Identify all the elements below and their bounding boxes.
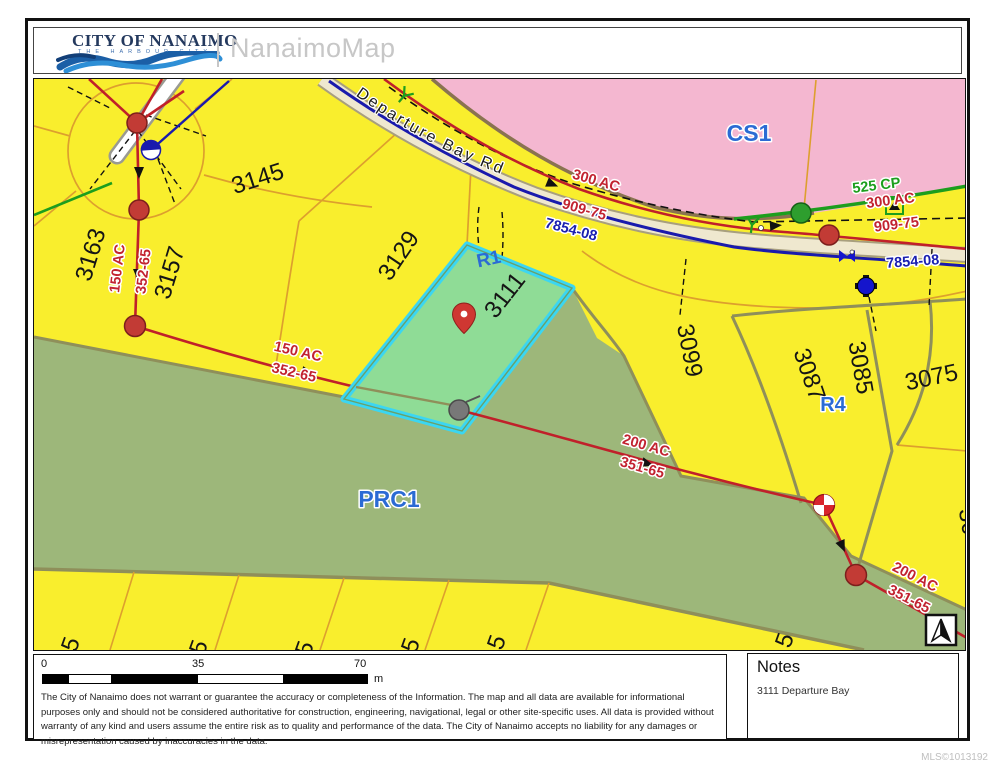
notes-body: 3111 Departure Bay xyxy=(757,685,849,697)
scale-bar xyxy=(42,674,368,684)
scale-tick-0: 0 xyxy=(41,658,47,670)
city-of-nanaimo-logo: CITY OF NANAIMO THE HARBOUR CITY xyxy=(50,29,230,72)
node-dot xyxy=(759,226,764,231)
scale-tick-70: 70 xyxy=(354,658,366,670)
scale-tick-35: 35 xyxy=(192,658,204,670)
nanaimomap-export-page: CITY OF NANAIMO THE HARBOUR CITY Nanaimo… xyxy=(0,0,994,768)
zone-label-prc1: PRC1 xyxy=(358,486,420,512)
page-border: CITY OF NANAIMO THE HARBOUR CITY Nanaimo… xyxy=(25,18,970,741)
scale-unit-label: m xyxy=(374,673,383,685)
mls-number: MLS©1013192 xyxy=(921,752,988,763)
logo-title: CITY OF NANAIMO xyxy=(72,31,238,51)
pie-monument-icon xyxy=(814,495,835,516)
map-canvas: Departure Bay Rd CS1 PRC1 R4 R1 3145 316… xyxy=(33,78,966,651)
header-divider xyxy=(217,33,219,67)
wave-logo-icon xyxy=(56,51,226,73)
zone-label-cs1: CS1 xyxy=(727,120,772,146)
header-bar: CITY OF NANAIMO THE HARBOUR CITY Nanaimo… xyxy=(33,27,962,74)
notes-panel: Notes 3111 Departure Bay xyxy=(747,653,959,739)
green-node-icon xyxy=(791,203,811,223)
scale-disclaimer-panel: 0 35 70 m The City of Nanaimo does not w… xyxy=(33,654,727,740)
notes-title: Notes xyxy=(757,658,800,677)
disclaimer-text: The City of Nanaimo does not warrant or … xyxy=(41,691,719,750)
app-title: NanaimoMap xyxy=(230,33,396,64)
north-arrow-icon xyxy=(926,615,956,645)
parcel-map: Departure Bay Rd CS1 PRC1 R4 R1 3145 316… xyxy=(34,79,965,650)
